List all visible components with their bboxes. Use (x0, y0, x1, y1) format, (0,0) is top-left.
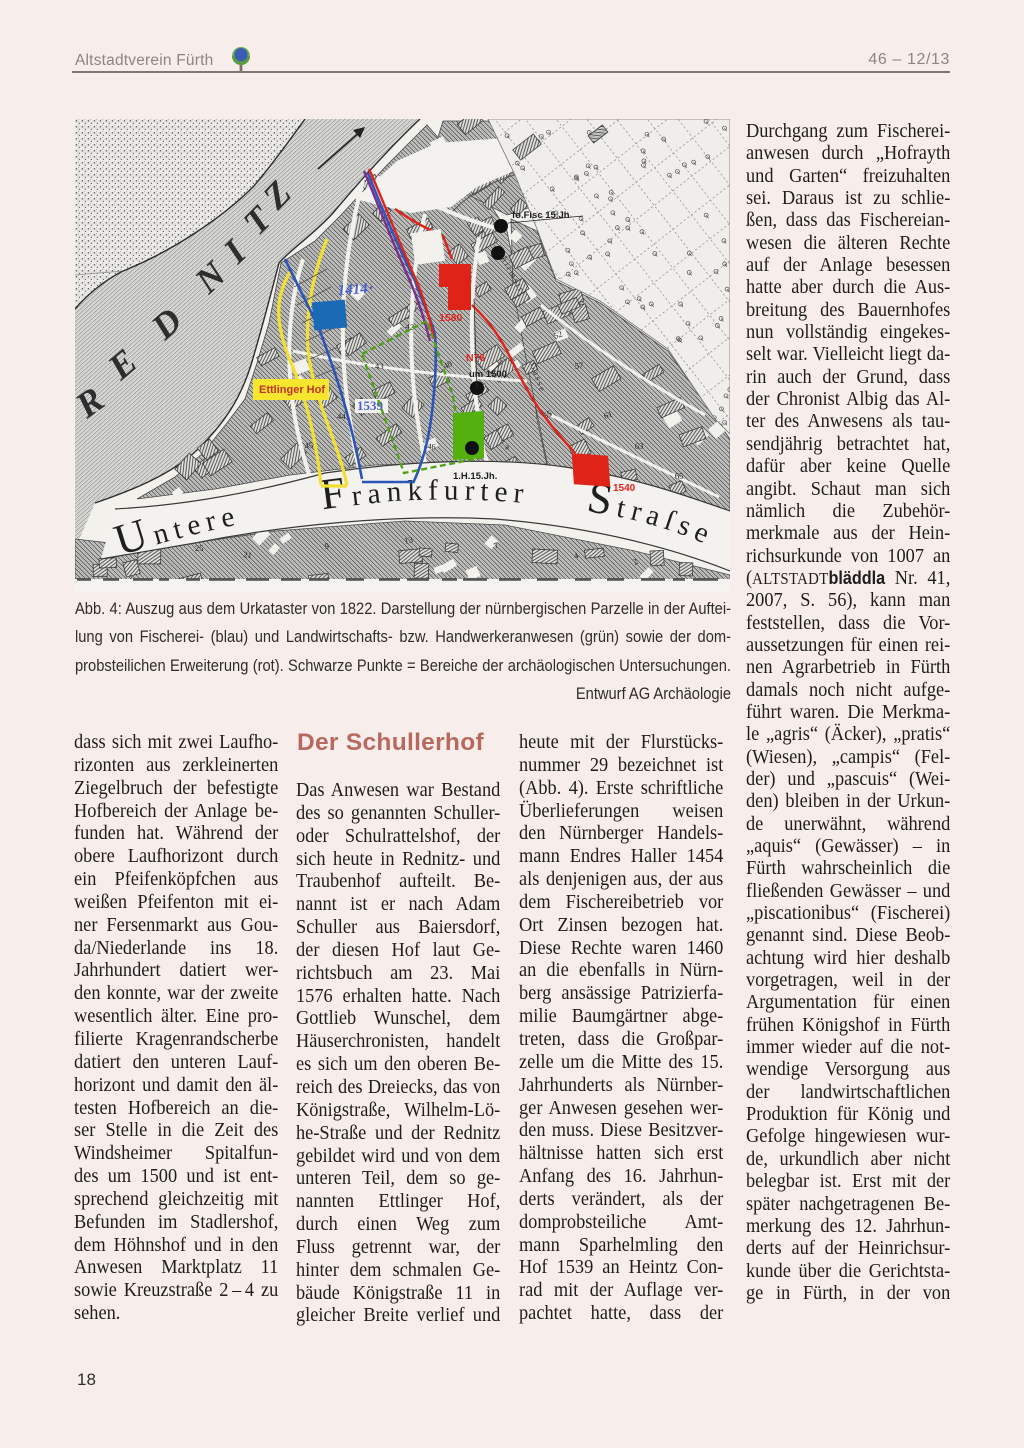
svg-text:1414⋅: 1414⋅ (337, 281, 374, 299)
svg-text:Ettlinger Hof: Ettlinger Hof (259, 384, 325, 396)
svg-text:65: 65 (675, 471, 684, 481)
svg-text:25: 25 (195, 543, 204, 553)
svg-text:45: 45 (304, 440, 314, 451)
svg-text:um 1500: um 1500 (469, 369, 507, 380)
svg-text:fo.Fisc 15.Jh: fo.Fisc 15.Jh (512, 210, 570, 221)
svg-text:1.H.15.Jh.: 1.H.15.Jh. (453, 471, 497, 482)
svg-text:43: 43 (375, 361, 384, 371)
svg-text:1540: 1540 (613, 483, 636, 494)
svg-text:57: 57 (574, 360, 583, 371)
svg-text:63: 63 (635, 441, 644, 451)
svg-text:44: 44 (337, 411, 347, 421)
svg-text:1580: 1580 (439, 312, 463, 324)
svg-text:21: 21 (243, 549, 253, 560)
